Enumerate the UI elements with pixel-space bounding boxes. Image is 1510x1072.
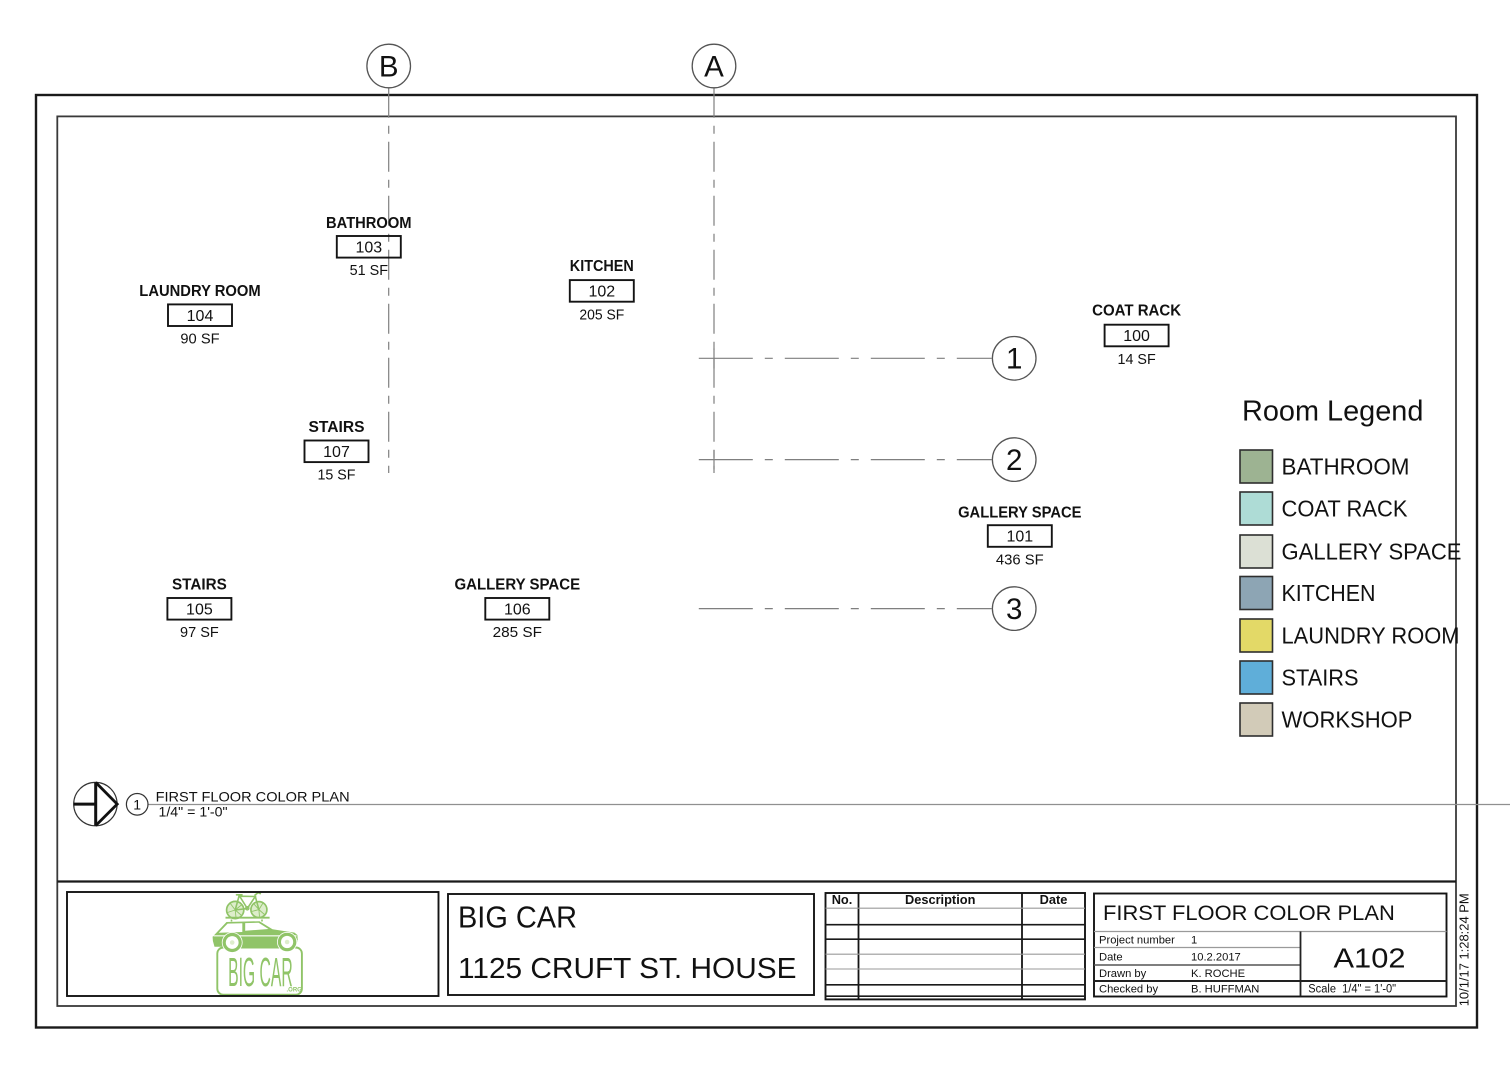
svg-text:Project number: Project number	[1099, 935, 1175, 947]
svg-text:97 SF: 97 SF	[180, 625, 219, 641]
svg-text:1: 1	[133, 796, 141, 812]
svg-text:Date: Date	[1040, 892, 1068, 907]
svg-text:107: 107	[323, 444, 350, 461]
svg-text:103: 103	[355, 239, 382, 256]
svg-text:A102: A102	[1334, 943, 1406, 974]
svg-text:K. ROCHE: K. ROCHE	[1191, 968, 1245, 980]
svg-text:105: 105	[186, 601, 213, 618]
svg-text:No.: No.	[832, 892, 853, 907]
svg-text:.ORG: .ORG	[287, 988, 303, 994]
svg-text:3: 3	[1006, 593, 1022, 626]
svg-text:90 SF: 90 SF	[180, 332, 219, 348]
svg-text:LAUNDRY ROOM: LAUNDRY ROOM	[1282, 623, 1460, 649]
svg-text:STAIRS: STAIRS	[172, 577, 227, 594]
svg-text:Date: Date	[1099, 951, 1123, 963]
svg-text:Room Legend: Room Legend	[1242, 396, 1423, 428]
svg-text:14 SF: 14 SF	[1118, 352, 1156, 368]
svg-text:1125 CRUFT ST. HOUSE: 1125 CRUFT ST. HOUSE	[458, 953, 797, 985]
svg-text:205 SF: 205 SF	[579, 307, 624, 323]
svg-text:1: 1	[1006, 343, 1022, 376]
svg-text:10/1/17 1:28:24 PM: 10/1/17 1:28:24 PM	[1457, 893, 1472, 1006]
svg-text:15 SF: 15 SF	[318, 468, 356, 484]
svg-text:FIRST FLOOR COLOR PLAN: FIRST FLOOR COLOR PLAN	[1103, 901, 1395, 925]
svg-text:100: 100	[1123, 328, 1150, 345]
svg-text:COAT RACK: COAT RACK	[1092, 303, 1181, 320]
svg-text:GALLERY SPACE: GALLERY SPACE	[1282, 539, 1462, 565]
svg-text:FIRST FLOOR COLOR PLAN: FIRST FLOOR COLOR PLAN	[156, 789, 350, 805]
svg-text:A: A	[704, 50, 724, 83]
svg-text:KITCHEN: KITCHEN	[570, 258, 634, 275]
svg-text:51 SF: 51 SF	[350, 263, 389, 279]
svg-text:Scale 1/4" = 1'-0": Scale 1/4" = 1'-0"	[1308, 984, 1396, 996]
svg-text:Drawn by: Drawn by	[1099, 968, 1147, 980]
svg-text:285 SF: 285 SF	[493, 625, 543, 641]
svg-text:LAUNDRY ROOM: LAUNDRY ROOM	[139, 283, 260, 300]
svg-text:GALLERY SPACE: GALLERY SPACE	[958, 505, 1082, 522]
svg-text:B. HUFFMAN: B. HUFFMAN	[1191, 984, 1259, 996]
svg-text:WORKSHOP: WORKSHOP	[1282, 707, 1413, 733]
svg-text:BIG CAR: BIG CAR	[458, 900, 577, 935]
svg-text:COAT RACK: COAT RACK	[1282, 496, 1409, 522]
svg-text:1: 1	[1191, 935, 1197, 947]
svg-text:10.2.2017: 10.2.2017	[1191, 951, 1241, 963]
svg-text:106: 106	[504, 601, 531, 618]
svg-text:GALLERY SPACE: GALLERY SPACE	[454, 577, 580, 594]
svg-text:1/4" = 1'-0": 1/4" = 1'-0"	[159, 803, 228, 819]
svg-text:104: 104	[187, 308, 214, 325]
svg-text:KITCHEN: KITCHEN	[1282, 580, 1376, 606]
svg-text:BIG CAR: BIG CAR	[228, 949, 293, 995]
svg-text:BATHROOM: BATHROOM	[1282, 454, 1410, 480]
svg-text:B: B	[379, 50, 399, 83]
svg-text:2: 2	[1006, 444, 1022, 477]
svg-text:Checked by: Checked by	[1099, 984, 1158, 996]
svg-text:BATHROOM: BATHROOM	[326, 215, 412, 232]
svg-text:STAIRS: STAIRS	[309, 419, 365, 436]
svg-text:Description: Description	[905, 892, 976, 907]
svg-text:STAIRS: STAIRS	[1282, 665, 1359, 691]
svg-text:102: 102	[588, 284, 615, 301]
svg-text:101: 101	[1006, 529, 1033, 546]
svg-text:436 SF: 436 SF	[996, 552, 1044, 568]
